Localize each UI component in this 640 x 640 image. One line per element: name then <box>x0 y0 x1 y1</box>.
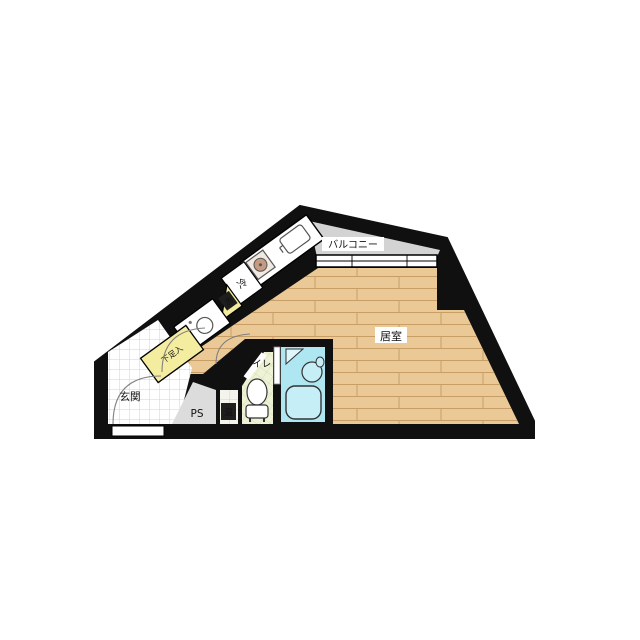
balcony-window <box>316 255 437 267</box>
toilet-label: トイレ <box>243 359 272 370</box>
floor-plan-image: 冷 洗 下足入 バルコニー 居室 玄関 トイレ PS 温 <box>0 0 640 640</box>
balcony-label: バルコニー <box>328 239 378 251</box>
bathtub <box>286 386 321 419</box>
bathroom <box>274 347 325 422</box>
toilet-fixture <box>246 379 268 422</box>
entrance-label: 玄関 <box>120 390 141 403</box>
water-heater-label: 温 <box>224 407 233 418</box>
bath-faucet <box>316 357 324 367</box>
floor-plan-svg: 冷 洗 下足入 バルコニー 居室 玄関 トイレ PS 温 <box>0 0 640 640</box>
bath-door <box>274 347 280 384</box>
pipe-space-label: PS <box>191 408 204 420</box>
living-room-label: 居室 <box>380 329 402 343</box>
